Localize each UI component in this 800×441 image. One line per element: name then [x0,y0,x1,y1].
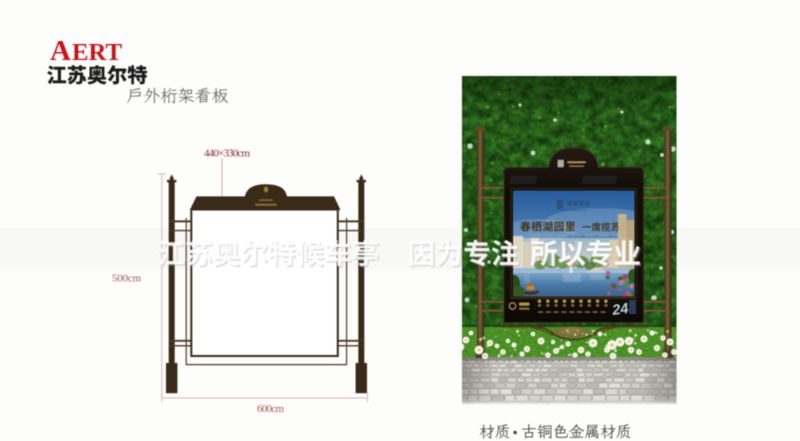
svg-text:ERT: ERT [72,39,122,66]
svg-text:440×330cm: 440×330cm [204,148,250,160]
svg-text:600cm: 600cm [257,403,284,415]
svg-text:24: 24 [610,301,629,319]
svg-text:A: A [50,35,71,67]
svg-text:500cm: 500cm [112,273,141,285]
